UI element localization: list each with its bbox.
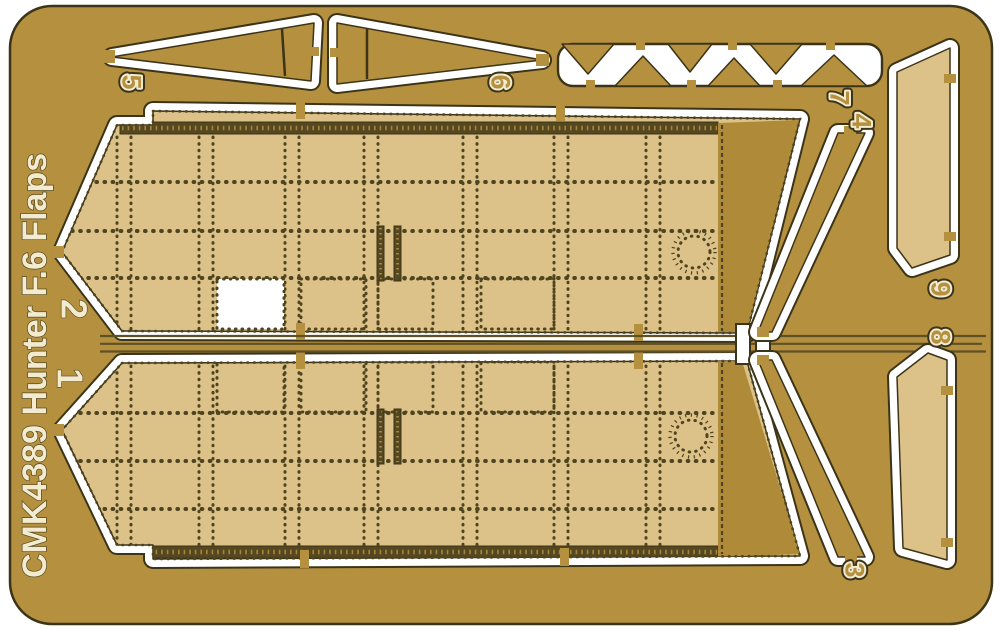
part-number-3: 3 3 [840, 562, 870, 577]
part-number-9: 9 9 [926, 281, 956, 296]
svg-text:1: 1 [49, 368, 90, 388]
part-number-8: 8 8 [926, 329, 956, 344]
part-number-6: 6 6 [486, 74, 516, 89]
part-2-flap-panel [52, 101, 800, 341]
fret-title: CMK4389 Hunter F.6 Flaps [16, 153, 54, 578]
part-number-7: 7 7 [825, 90, 855, 105]
fret-drawing: CMK4389 Hunter F.6 Flaps 2 1 5 5 6 6 7 7… [0, 0, 1000, 630]
svg-text:6: 6 [486, 74, 516, 89]
photo-etch-fret-photo: CMK4389 Hunter F.6 Flaps 2 1 5 5 6 6 7 7… [0, 0, 1000, 630]
svg-text:9: 9 [926, 281, 956, 296]
part-7-zigzag-strip [558, 38, 882, 92]
part-9-blade [897, 48, 956, 268]
part-1-flap-panel [52, 352, 800, 568]
cutout-window [217, 279, 284, 329]
cross-channel [736, 324, 750, 364]
svg-text:2: 2 [53, 299, 94, 319]
part-number-2: 2 [53, 299, 94, 319]
part-8-blade [897, 353, 953, 560]
svg-text:5: 5 [117, 74, 147, 89]
svg-text:7: 7 [825, 90, 855, 105]
fret-title-text: CMK4389 Hunter F.6 Flaps [16, 153, 54, 578]
part-number-1: 1 [49, 368, 90, 388]
svg-text:4: 4 [847, 113, 877, 128]
svg-text:3: 3 [840, 562, 870, 577]
svg-text:8: 8 [926, 329, 956, 344]
part-number-5: 5 5 [117, 74, 147, 89]
part-number-4: 4 4 [847, 113, 877, 128]
